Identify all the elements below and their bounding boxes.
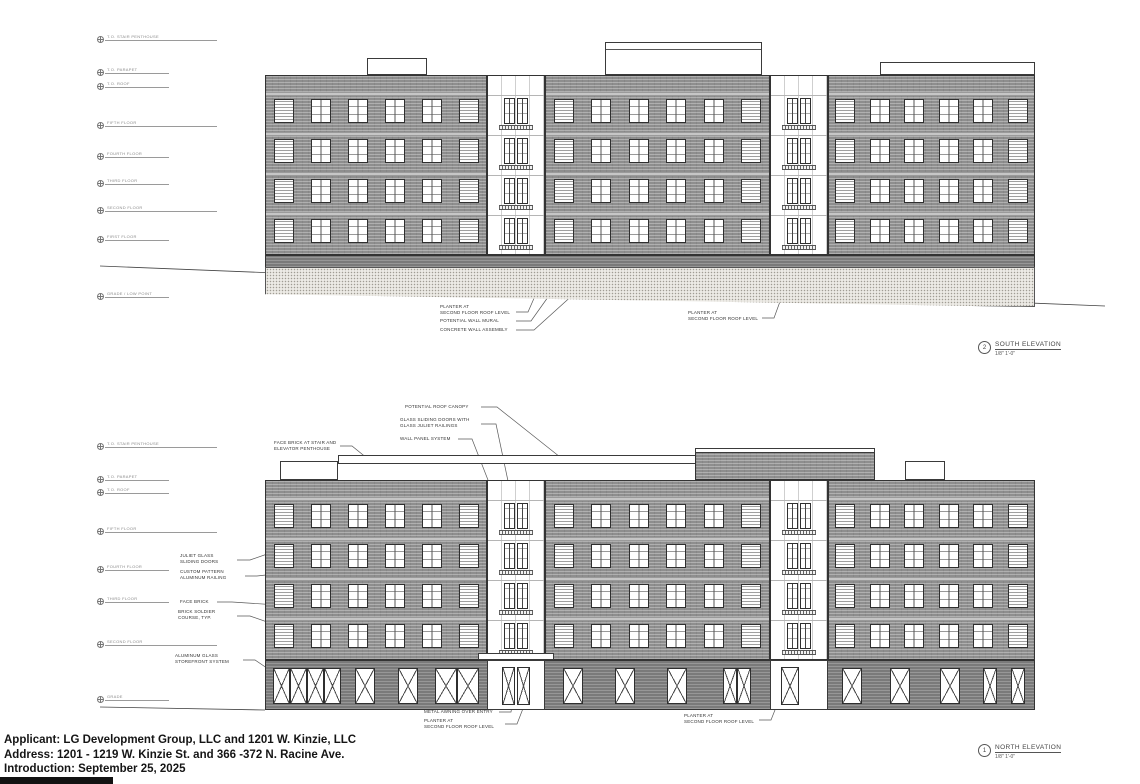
- storefront-pane: [290, 668, 307, 704]
- south-datum-icon: [97, 236, 104, 243]
- north-window: [459, 544, 479, 568]
- north-window: [422, 624, 442, 648]
- north-window: [274, 624, 294, 648]
- south-roof-parapet: [880, 62, 1035, 75]
- storefront-pane: [723, 668, 737, 704]
- view-title-text: SOUTH ELEVATION: [995, 341, 1061, 350]
- north-bay-floor-line: [488, 580, 544, 581]
- north-window: [422, 584, 442, 608]
- north-floor-band: [546, 617, 769, 621]
- south-bay-floor-line: [771, 95, 827, 96]
- north-window: [741, 504, 761, 528]
- north-window: [385, 584, 405, 608]
- north-level-line: [105, 700, 169, 701]
- north-floor-band: [829, 577, 1034, 581]
- north-window: [1008, 544, 1028, 568]
- south-balcony-door: [504, 98, 515, 124]
- view-scale-text: 1/8" 1'-0": [995, 754, 1061, 760]
- south-window: [422, 99, 442, 123]
- north-storefront-window: [435, 668, 479, 704]
- leader-line: [481, 407, 560, 457]
- north-window: [704, 584, 724, 608]
- south-window: [554, 179, 574, 203]
- south-window: [1008, 219, 1028, 243]
- storefront-pane: [307, 668, 324, 704]
- south-window: [835, 99, 855, 123]
- north-window: [835, 544, 855, 568]
- south-juliet-railing: [782, 205, 816, 210]
- north-storefront-window: [667, 668, 687, 704]
- north-level-label: FIFTH FLOOR: [107, 526, 137, 531]
- north-window: [939, 624, 959, 648]
- south-brick-facade-section: [545, 75, 770, 255]
- south-window: [629, 219, 649, 243]
- north-bay2-door: [781, 667, 799, 705]
- sheet-edge-bar: [0, 777, 113, 784]
- north-window: [385, 624, 405, 648]
- north-floor-band: [829, 497, 1034, 501]
- south-bay-floor-line: [488, 175, 544, 176]
- south-elevation-title: 2 SOUTH ELEVATION 1/8" 1'-0": [978, 341, 1061, 357]
- north-window: [870, 584, 890, 608]
- north-brick-facade-section: [545, 480, 770, 660]
- south-window: [554, 139, 574, 163]
- south-window: [629, 99, 649, 123]
- north-storefront-window: [890, 668, 910, 704]
- north-entry-door: [517, 667, 530, 705]
- north-floor-band: [266, 617, 486, 621]
- north-window: [904, 584, 924, 608]
- south-balcony-door: [800, 218, 811, 244]
- south-floor-band: [546, 172, 769, 176]
- south-window: [741, 99, 761, 123]
- north-window: [704, 624, 724, 648]
- annotation-label: GLASS SLIDING DOORS WITH GLASS JULIET RA…: [400, 417, 470, 429]
- south-balcony-door: [504, 138, 515, 164]
- south-window: [939, 179, 959, 203]
- south-juliet-railing: [499, 125, 533, 130]
- south-level-line: [105, 184, 169, 185]
- south-window: [741, 139, 761, 163]
- south-brick-facade-section: [828, 75, 1035, 255]
- south-floor-band: [546, 212, 769, 216]
- south-level-label: FIFTH FLOOR: [107, 120, 137, 125]
- north-window: [741, 544, 761, 568]
- south-window: [422, 139, 442, 163]
- south-brick-facade-section: [265, 75, 487, 255]
- annotation-label: POTENTIAL WALL MURAL: [440, 318, 499, 324]
- north-juliet-railing: [782, 650, 816, 655]
- north-window: [348, 584, 368, 608]
- north-level-line: [105, 645, 217, 646]
- north-brick-penthouse: [695, 448, 875, 480]
- south-level-label: FIRST FLOOR: [107, 234, 137, 239]
- north-bay-floor-line: [771, 620, 827, 621]
- south-roof-penthouse: [605, 42, 762, 75]
- north-window: [1008, 504, 1028, 528]
- north-window: [311, 624, 331, 648]
- north-window: [629, 624, 649, 648]
- south-juliet-railing: [499, 165, 533, 170]
- south-window: [311, 139, 331, 163]
- north-balcony-door: [787, 543, 798, 569]
- applicant-line: Applicant: LG Development Group, LLC and…: [4, 733, 356, 748]
- north-storefront-window: [983, 668, 997, 704]
- south-bay-floor-line: [488, 95, 544, 96]
- storefront-pane: [457, 668, 479, 704]
- north-floor-band: [546, 537, 769, 541]
- north-level-label: GRADE: [107, 694, 123, 699]
- north-juliet-railing: [782, 570, 816, 575]
- north-window: [666, 584, 686, 608]
- south-window: [554, 99, 574, 123]
- south-window: [1008, 179, 1028, 203]
- south-window: [704, 139, 724, 163]
- south-balcony-door: [787, 98, 798, 124]
- north-balcony-door: [504, 583, 515, 609]
- north-window: [385, 504, 405, 528]
- south-window: [666, 219, 686, 243]
- south-balcony-door: [800, 98, 811, 124]
- storefront-pane: [435, 668, 457, 704]
- north-entry-awning: [478, 653, 554, 660]
- south-window: [939, 139, 959, 163]
- south-window: [666, 179, 686, 203]
- north-datum-icon: [97, 476, 104, 483]
- south-window: [973, 99, 993, 123]
- north-balcony-door: [517, 503, 528, 529]
- north-bay-floor-line: [488, 620, 544, 621]
- south-window: [835, 219, 855, 243]
- annotation-label: PLANTER AT SECOND FLOOR ROOF LEVEL: [684, 713, 754, 725]
- north-window: [591, 504, 611, 528]
- annotation-label: BRICK SOLDIER COURSE, TYP.: [178, 609, 215, 621]
- north-elevation-title: 1 NORTH ELEVATION 1/8" 1'-0": [978, 744, 1061, 760]
- north-stair-penthouse: [280, 461, 338, 480]
- north-entry-door: [502, 667, 515, 705]
- south-bay-floor-line: [771, 135, 827, 136]
- south-window: [741, 219, 761, 243]
- south-window: [311, 219, 331, 243]
- north-storefront-window: [723, 668, 751, 704]
- north-datum-icon: [97, 641, 104, 648]
- north-floor-band: [266, 537, 486, 541]
- north-balcony-door: [787, 503, 798, 529]
- annotation-label: PLANTER AT SECOND FLOOR ROOF LEVEL: [440, 304, 510, 316]
- south-window: [629, 179, 649, 203]
- north-window: [741, 584, 761, 608]
- view-title-text: NORTH ELEVATION: [995, 744, 1061, 753]
- north-storefront-window: [940, 668, 960, 704]
- south-window: [973, 179, 993, 203]
- annotation-label: WALL PANEL SYSTEM: [400, 436, 451, 442]
- south-window: [385, 139, 405, 163]
- south-window: [311, 99, 331, 123]
- north-juliet-railing: [782, 610, 816, 615]
- north-window: [904, 504, 924, 528]
- north-window: [274, 584, 294, 608]
- project-info-block: Applicant: LG Development Group, LLC and…: [4, 733, 356, 777]
- north-storefront-window: [615, 668, 635, 704]
- south-window: [704, 219, 724, 243]
- north-level-line: [105, 570, 169, 571]
- north-floor-band: [829, 617, 1034, 621]
- north-window: [554, 624, 574, 648]
- south-bay-floor-line: [488, 215, 544, 216]
- north-window: [422, 544, 442, 568]
- north-window: [704, 504, 724, 528]
- north-juliet-railing: [499, 610, 533, 615]
- north-ground-floor-band: [265, 660, 1035, 710]
- north-window: [973, 624, 993, 648]
- south-window: [385, 99, 405, 123]
- drawing-sheet: 2 SOUTH ELEVATION 1/8" 1'-0" 1 NORTH ELE…: [0, 0, 1140, 784]
- south-bay-floor-line: [488, 135, 544, 136]
- south-window: [629, 139, 649, 163]
- south-window: [741, 179, 761, 203]
- view-scale-text: 1/8" 1'-0": [995, 351, 1061, 357]
- north-level-line: [105, 493, 169, 494]
- annotation-label: FACE BRICK: [180, 599, 209, 605]
- south-window: [904, 139, 924, 163]
- north-window: [1008, 584, 1028, 608]
- south-floor-band: [266, 212, 486, 216]
- north-datum-icon: [97, 696, 104, 703]
- south-floor-band: [546, 92, 769, 96]
- south-floor-band: [266, 172, 486, 176]
- south-window: [870, 99, 890, 123]
- south-window: [385, 179, 405, 203]
- south-window: [591, 139, 611, 163]
- north-window: [835, 584, 855, 608]
- south-window: [1008, 139, 1028, 163]
- north-balcony-door: [504, 623, 515, 649]
- south-datum-icon: [97, 69, 104, 76]
- south-level-label: T.O. STAIR PENTHOUSE: [107, 34, 159, 39]
- south-level-line: [105, 87, 169, 88]
- south-window: [348, 179, 368, 203]
- storefront-pane: [273, 668, 290, 704]
- south-window: [459, 99, 479, 123]
- north-storefront-window: [1011, 668, 1025, 704]
- north-level-line: [105, 447, 217, 448]
- north-window: [629, 584, 649, 608]
- south-datum-icon: [97, 36, 104, 43]
- north-window: [666, 624, 686, 648]
- north-datum-icon: [97, 528, 104, 535]
- north-balcony-door: [517, 543, 528, 569]
- annotation-label: METAL AWNING OVER ENTRY: [424, 709, 493, 715]
- south-window: [348, 219, 368, 243]
- south-window: [704, 179, 724, 203]
- north-level-label: T.O. PARAPET: [107, 474, 137, 479]
- south-level-label: T.O. ROOF: [107, 81, 130, 86]
- north-window: [348, 624, 368, 648]
- south-window: [348, 99, 368, 123]
- annotation-label: CONCRETE WALL ASSEMBLY: [440, 327, 508, 333]
- north-window: [311, 544, 331, 568]
- north-window: [311, 584, 331, 608]
- south-datum-icon: [97, 293, 104, 300]
- detail-number-icon: 1: [978, 744, 991, 757]
- address-line: Address: 1201 - 1219 W. Kinzie St. and 3…: [4, 748, 356, 763]
- annotation-label: POTENTIAL ROOF CANOPY: [405, 404, 469, 410]
- north-storefront-window: [563, 668, 583, 704]
- south-penthouse-cap-line: [606, 49, 761, 50]
- north-storefront-window: [355, 668, 375, 704]
- annotation-label: CUSTOM PATTERN ALUMINUM RAILING: [180, 569, 226, 581]
- south-juliet-railing: [782, 245, 816, 250]
- storefront-pane: [324, 668, 341, 704]
- south-window: [591, 179, 611, 203]
- north-balcony-door: [800, 623, 811, 649]
- north-penthouse-cap: [695, 448, 875, 453]
- grade-line: [100, 707, 265, 710]
- south-window: [459, 219, 479, 243]
- south-window: [973, 139, 993, 163]
- north-balcony-door: [800, 543, 811, 569]
- north-datum-icon: [97, 489, 104, 496]
- north-window: [554, 544, 574, 568]
- storefront-pane: [737, 668, 751, 704]
- north-window: [939, 584, 959, 608]
- annotation-label: PLANTER AT SECOND FLOOR ROOF LEVEL: [424, 718, 494, 730]
- north-window: [704, 544, 724, 568]
- north-entry-bay: [487, 660, 545, 710]
- south-window: [904, 219, 924, 243]
- south-window: [835, 139, 855, 163]
- north-window: [904, 544, 924, 568]
- south-second-floor-band: [265, 255, 1035, 268]
- north-floor-band: [266, 577, 486, 581]
- south-window: [666, 99, 686, 123]
- south-balcony-door: [800, 138, 811, 164]
- south-roof-penthouse: [367, 58, 427, 75]
- south-juliet-railing: [782, 125, 816, 130]
- north-bay-floor-line: [488, 540, 544, 541]
- south-floor-band: [546, 132, 769, 136]
- south-level-line: [105, 126, 217, 127]
- south-level-line: [105, 240, 169, 241]
- north-window: [385, 544, 405, 568]
- north-storefront-window: [398, 668, 418, 704]
- north-floor-band: [546, 497, 769, 501]
- south-window: [348, 139, 368, 163]
- south-datum-icon: [97, 122, 104, 129]
- south-floor-band: [266, 92, 486, 96]
- north-window: [939, 504, 959, 528]
- north-level-label: FOURTH FLOOR: [107, 564, 142, 569]
- south-window: [274, 139, 294, 163]
- north-window: [666, 504, 686, 528]
- north-brick-facade-section: [265, 480, 487, 660]
- north-level-line: [105, 480, 169, 481]
- south-level-line: [105, 157, 169, 158]
- south-window: [835, 179, 855, 203]
- annotation-label: PLANTER AT SECOND FLOOR ROOF LEVEL: [688, 310, 758, 322]
- south-level-label: THIRD FLOOR: [107, 178, 137, 183]
- south-window: [591, 99, 611, 123]
- north-balcony-door: [517, 623, 528, 649]
- north-window: [870, 544, 890, 568]
- north-balcony-door: [787, 583, 798, 609]
- south-window: [422, 219, 442, 243]
- south-level-label: SECOND FLOOR: [107, 205, 143, 210]
- south-balcony-door: [787, 138, 798, 164]
- south-balcony-door: [800, 178, 811, 204]
- south-level-label: T.O. PARAPET: [107, 67, 137, 72]
- north-window: [459, 504, 479, 528]
- south-datum-icon: [97, 83, 104, 90]
- south-balcony-door: [517, 138, 528, 164]
- north-level-line: [105, 602, 169, 603]
- south-level-label: GRADE / LOW POINT: [107, 291, 152, 296]
- north-floor-band: [546, 577, 769, 581]
- south-balcony-door: [504, 178, 515, 204]
- south-balcony-door: [787, 218, 798, 244]
- south-window: [904, 99, 924, 123]
- north-bay-floor-line: [488, 500, 544, 501]
- north-window: [274, 544, 294, 568]
- north-window: [554, 584, 574, 608]
- north-juliet-railing: [782, 530, 816, 535]
- south-window: [939, 219, 959, 243]
- north-window: [629, 504, 649, 528]
- south-floor-band: [829, 92, 1034, 96]
- north-window: [311, 504, 331, 528]
- north-window: [904, 624, 924, 648]
- north-storefront-window: [273, 668, 341, 704]
- south-window: [422, 179, 442, 203]
- north-level-line: [105, 532, 217, 533]
- south-floor-band: [829, 172, 1034, 176]
- north-window: [459, 584, 479, 608]
- south-window: [385, 219, 405, 243]
- south-datum-icon: [97, 180, 104, 187]
- south-window: [939, 99, 959, 123]
- annotation-label: ALUMINUM GLASS STOREFRONT SYSTEM: [175, 653, 229, 665]
- north-balcony-door: [504, 503, 515, 529]
- north-datum-icon: [97, 598, 104, 605]
- south-window: [311, 179, 331, 203]
- north-level-label: T.O. ROOF: [107, 487, 130, 492]
- north-window: [591, 544, 611, 568]
- north-window: [1008, 624, 1028, 648]
- north-balcony-door: [504, 543, 515, 569]
- north-window: [666, 544, 686, 568]
- south-floor-band: [266, 132, 486, 136]
- north-window: [870, 504, 890, 528]
- north-floor-band: [829, 537, 1034, 541]
- south-level-line: [105, 40, 217, 41]
- north-balcony-door: [800, 583, 811, 609]
- north-window: [973, 584, 993, 608]
- south-window: [704, 99, 724, 123]
- south-floor-band: [829, 132, 1034, 136]
- south-window: [973, 219, 993, 243]
- south-window: [870, 139, 890, 163]
- south-window: [591, 219, 611, 243]
- north-balcony-door: [800, 503, 811, 529]
- north-level-label: THIRD FLOOR: [107, 596, 137, 601]
- south-floor-band: [829, 212, 1034, 216]
- north-brick-facade-section: [828, 480, 1035, 660]
- south-window: [904, 179, 924, 203]
- north-window: [741, 624, 761, 648]
- north-window: [973, 544, 993, 568]
- north-window: [274, 504, 294, 528]
- north-window: [835, 624, 855, 648]
